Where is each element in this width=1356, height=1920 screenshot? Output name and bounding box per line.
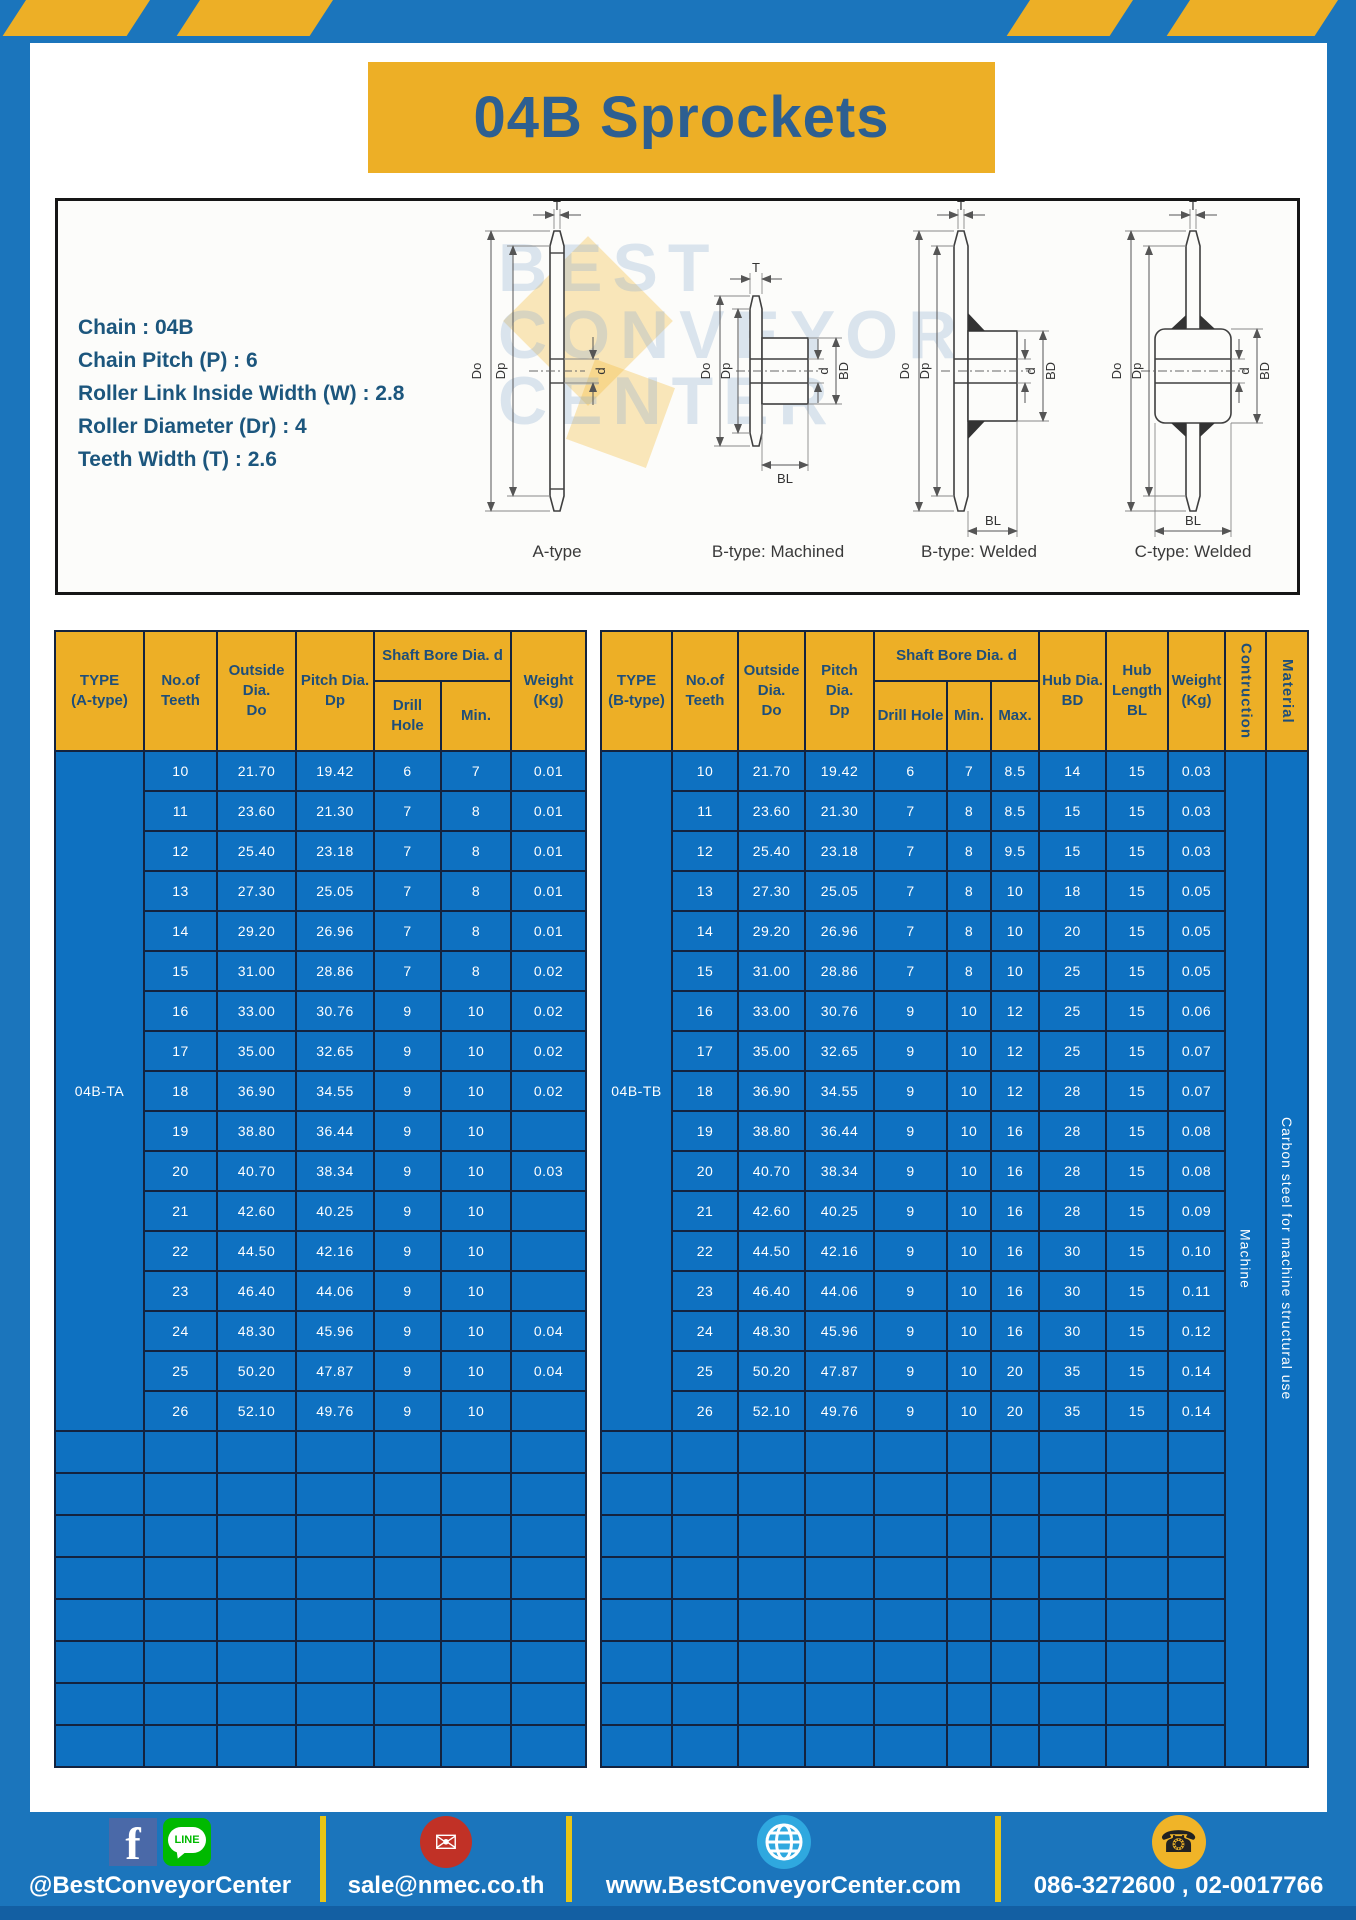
table-cell xyxy=(1106,1683,1168,1725)
table-cell: 33.00 xyxy=(738,991,805,1031)
table-cell: 10 xyxy=(947,1031,991,1071)
table-cell: 50.20 xyxy=(738,1351,805,1391)
table-cell: 9 xyxy=(874,1231,947,1271)
table-cell xyxy=(1039,1725,1106,1767)
table-cell: 20 xyxy=(672,1151,738,1191)
empty-row xyxy=(601,1641,1308,1683)
footer: f LINE @BestConveyorCenter ✉ sale@nmec.c… xyxy=(0,1812,1356,1906)
header-cell: Max. xyxy=(991,681,1039,751)
table-cell: 9 xyxy=(874,1111,947,1151)
svg-text:B-type: Welded: B-type: Welded xyxy=(921,542,1037,561)
table-cell: 15 xyxy=(1039,791,1106,831)
table-cell xyxy=(55,1725,144,1767)
table-cell: 35 xyxy=(1039,1391,1106,1431)
table-cell xyxy=(874,1725,947,1767)
table-cell xyxy=(947,1431,991,1473)
table-cell xyxy=(1106,1431,1168,1473)
table-row: 1633.0030.769101225150.06 xyxy=(601,991,1308,1031)
spec-drawing-panel: BEST CONVEYOR CENTER Chain : 04B Chain P… xyxy=(55,198,1300,595)
table-cell: 7 xyxy=(374,911,441,951)
table-cell: 0.01 xyxy=(511,751,586,791)
table-cell: 0.12 xyxy=(1168,1311,1225,1351)
table-cell: 50.20 xyxy=(217,1351,296,1391)
empty-row xyxy=(55,1641,586,1683)
table-cell xyxy=(805,1641,874,1683)
table-row: 1123.6021.30788.515150.03 xyxy=(601,791,1308,831)
table-cell: 28 xyxy=(1039,1111,1106,1151)
table-cell: 12 xyxy=(991,1071,1039,1111)
header-cell: Shaft Bore Dia. d xyxy=(874,631,1039,681)
table-cell xyxy=(511,1231,586,1271)
header-cell: Min. xyxy=(947,681,991,751)
table-cell: 8 xyxy=(947,871,991,911)
table-cell: 0.11 xyxy=(1168,1271,1225,1311)
table-cell: 10 xyxy=(947,1311,991,1351)
table-cell: 20 xyxy=(991,1391,1039,1431)
table-cell: 0.10 xyxy=(1168,1231,1225,1271)
footer-phone-section: ☎ 086-3272600 , 02-0017766 xyxy=(1001,1812,1356,1906)
table-cell xyxy=(441,1557,511,1599)
svg-text:BD: BD xyxy=(836,362,851,380)
table-cell xyxy=(511,1431,586,1473)
table-cell: 36.44 xyxy=(296,1111,374,1151)
table-cell xyxy=(1168,1515,1225,1557)
table-cell xyxy=(1106,1515,1168,1557)
table-cell xyxy=(296,1431,374,1473)
table-cell: 23.60 xyxy=(217,791,296,831)
table-row: 2142.6040.259101628150.09 xyxy=(601,1191,1308,1231)
table-cell: 25 xyxy=(1039,991,1106,1031)
table-cell: 42.16 xyxy=(805,1231,874,1271)
table-cell xyxy=(511,1391,586,1431)
phone-icon[interactable]: ☎ xyxy=(1152,1815,1206,1869)
table-cell: 0.01 xyxy=(511,831,586,871)
table-cell: 29.20 xyxy=(738,911,805,951)
table-cell: 49.76 xyxy=(805,1391,874,1431)
table-cell: 9 xyxy=(374,1231,441,1271)
table-cell: 23.18 xyxy=(805,831,874,871)
table-cell: 0.01 xyxy=(511,871,586,911)
table-cell: 10 xyxy=(441,1351,511,1391)
facebook-icon[interactable]: f xyxy=(109,1818,157,1866)
table-cell xyxy=(947,1599,991,1641)
header-cell: Outside Dia. Do xyxy=(217,631,296,751)
table-cell xyxy=(1039,1683,1106,1725)
table-cell: 0.07 xyxy=(1168,1031,1225,1071)
table-cell xyxy=(672,1473,738,1515)
table-cell: 15 xyxy=(1106,911,1168,951)
type-cell: 04B-TB xyxy=(601,751,672,1431)
table-cell: 10 xyxy=(991,951,1039,991)
table-cell xyxy=(511,1473,586,1515)
table-cell xyxy=(144,1557,217,1599)
table-cell xyxy=(601,1641,672,1683)
table-cell xyxy=(947,1683,991,1725)
table-cell: 47.87 xyxy=(805,1351,874,1391)
table-cell: 10 xyxy=(672,751,738,791)
table-cell: 27.30 xyxy=(738,871,805,911)
header-cell: Outside Dia. Do xyxy=(738,631,805,751)
table-cell: 0.04 xyxy=(511,1351,586,1391)
table-cell xyxy=(947,1641,991,1683)
table-cell xyxy=(511,1725,586,1767)
table-cell: 0.02 xyxy=(511,1071,586,1111)
table-cell: 10 xyxy=(947,1351,991,1391)
table-cell xyxy=(511,1641,586,1683)
table-cell: 42.16 xyxy=(296,1231,374,1271)
svg-text:C-type: Welded: C-type: Welded xyxy=(1135,542,1252,561)
table-cell: 25 xyxy=(144,1351,217,1391)
table-cell: 9 xyxy=(874,1031,947,1071)
table-cell: 12 xyxy=(991,991,1039,1031)
table-cell xyxy=(217,1515,296,1557)
table-cell: 15 xyxy=(1106,951,1168,991)
table-row: 1836.9034.559101228150.07 xyxy=(601,1071,1308,1111)
table-cell: 17 xyxy=(144,1031,217,1071)
table-row: 2244.5042.169101630150.10 xyxy=(601,1231,1308,1271)
table-cell: 16 xyxy=(991,1311,1039,1351)
table-row: 2550.2047.879102035150.14 xyxy=(601,1351,1308,1391)
watermark-shape xyxy=(566,359,675,468)
empty-row xyxy=(601,1557,1308,1599)
table-cell: 16 xyxy=(991,1271,1039,1311)
table-cell: 9 xyxy=(374,1271,441,1311)
table-cell: 30 xyxy=(1039,1311,1106,1351)
table-cell: 10 xyxy=(144,751,217,791)
table-cell: 21 xyxy=(144,1191,217,1231)
header-cell: Weight (Kg) xyxy=(1168,631,1225,751)
line-icon[interactable]: LINE xyxy=(163,1818,211,1866)
table-cell xyxy=(601,1557,672,1599)
table-cell: 33.00 xyxy=(217,991,296,1031)
table-cell: 10 xyxy=(441,1071,511,1111)
table-cell: 10 xyxy=(441,1031,511,1071)
table-cell: 0.07 xyxy=(1168,1071,1225,1111)
table-cell: 23 xyxy=(672,1271,738,1311)
website-url[interactable]: www.BestConveyorCenter.com xyxy=(606,1872,961,1900)
table-row: 2346.4044.069101630150.11 xyxy=(601,1271,1308,1311)
table-cell: 14 xyxy=(1039,751,1106,791)
table-cell: 32.65 xyxy=(805,1031,874,1071)
spec-line: Chain Pitch (P) : 6 xyxy=(78,344,404,377)
table-cell xyxy=(441,1431,511,1473)
table-cell xyxy=(738,1599,805,1641)
table-cell: 0.14 xyxy=(1168,1351,1225,1391)
table-cell: 9 xyxy=(874,1071,947,1111)
table-cell: 44.06 xyxy=(296,1271,374,1311)
table-cell: 8 xyxy=(441,791,511,831)
table-cell: 30 xyxy=(1039,1271,1106,1311)
table-cell: 7 xyxy=(874,791,947,831)
table-cell: 10 xyxy=(991,911,1039,951)
chain-specs: Chain : 04B Chain Pitch (P) : 6 Roller L… xyxy=(78,311,404,476)
empty-row xyxy=(55,1725,586,1767)
table-cell: 26.96 xyxy=(296,911,374,951)
table-cell: 7 xyxy=(374,871,441,911)
table-cell xyxy=(1106,1641,1168,1683)
svg-text:T: T xyxy=(957,201,965,213)
empty-row xyxy=(55,1557,586,1599)
phone-numbers[interactable]: 086-3272600 , 02-0017766 xyxy=(1034,1872,1324,1900)
table-cell xyxy=(511,1683,586,1725)
table-cell: 28.86 xyxy=(805,951,874,991)
table-row: 1225.4023.18789.515150.03 xyxy=(601,831,1308,871)
svg-text:Do: Do xyxy=(897,363,912,380)
header-cell: Weight (Kg) xyxy=(511,631,586,751)
table-cell: 19 xyxy=(672,1111,738,1151)
svg-text:d: d xyxy=(1237,367,1252,374)
table-cell xyxy=(805,1683,874,1725)
table-cell: 10 xyxy=(947,1151,991,1191)
table-cell: 15 xyxy=(1106,1351,1168,1391)
table-cell: 0.05 xyxy=(1168,871,1225,911)
table-cell: 8 xyxy=(441,871,511,911)
table-cell: 44.50 xyxy=(217,1231,296,1271)
table-cell: 21.30 xyxy=(805,791,874,831)
table-cell: 0.08 xyxy=(1168,1111,1225,1151)
table-cell xyxy=(144,1725,217,1767)
table-cell: 38.34 xyxy=(296,1151,374,1191)
empty-row xyxy=(55,1599,586,1641)
table-cell: 7 xyxy=(374,951,441,991)
table-cell: 0.01 xyxy=(511,791,586,831)
table-cell: 8.5 xyxy=(991,751,1039,791)
table-cell xyxy=(1168,1599,1225,1641)
social-handle[interactable]: @BestConveyorCenter xyxy=(29,1872,291,1900)
table-cell: 22 xyxy=(672,1231,738,1271)
table-cell: 44.50 xyxy=(738,1231,805,1271)
table-cell: 9 xyxy=(374,1391,441,1431)
table-cell: 25.05 xyxy=(296,871,374,911)
table-cell xyxy=(55,1473,144,1515)
table-cell: 0.02 xyxy=(511,951,586,991)
table-cell xyxy=(874,1515,947,1557)
table-cell: 38.80 xyxy=(738,1111,805,1151)
svg-text:Dp: Dp xyxy=(1129,363,1144,380)
svg-text:Dp: Dp xyxy=(493,363,508,380)
table-cell: 34.55 xyxy=(805,1071,874,1111)
table-cell xyxy=(296,1683,374,1725)
table-cell: 9.5 xyxy=(991,831,1039,871)
table-cell: 21.30 xyxy=(296,791,374,831)
table-cell: 49.76 xyxy=(296,1391,374,1431)
table-cell: 0.03 xyxy=(1168,751,1225,791)
table-cell: 7 xyxy=(874,951,947,991)
empty-row xyxy=(601,1515,1308,1557)
table-cell: 10 xyxy=(947,1111,991,1151)
table-cell: 21.70 xyxy=(738,751,805,791)
table-cell: 28.86 xyxy=(296,951,374,991)
table-cell: 15 xyxy=(1106,831,1168,871)
empty-row xyxy=(601,1599,1308,1641)
table-cell: 9 xyxy=(874,1191,947,1231)
table-cell xyxy=(601,1683,672,1725)
table-cell: 8 xyxy=(947,911,991,951)
table-cell xyxy=(217,1599,296,1641)
svg-text:d: d xyxy=(816,367,831,374)
table-cell: 38.80 xyxy=(217,1111,296,1151)
table-cell: 16 xyxy=(991,1151,1039,1191)
table-cell xyxy=(805,1599,874,1641)
svg-text:Do: Do xyxy=(698,363,713,380)
table-row: 1531.0028.86781025150.05 xyxy=(601,951,1308,991)
table-cell xyxy=(511,1557,586,1599)
table-cell xyxy=(296,1473,374,1515)
table-cell: 7 xyxy=(874,831,947,871)
header-cell: Drill Hole xyxy=(374,681,441,751)
table-cell xyxy=(511,1271,586,1311)
table-cell xyxy=(738,1641,805,1683)
table-cell: 7 xyxy=(874,911,947,951)
table-cell: 10 xyxy=(441,991,511,1031)
table-cell: 15 xyxy=(1106,1271,1168,1311)
table-cell xyxy=(738,1683,805,1725)
table-cell xyxy=(601,1725,672,1767)
header-cell: Pitch Dia. Dp xyxy=(296,631,374,751)
table-cell: 13 xyxy=(144,871,217,911)
table-cell: 8 xyxy=(441,951,511,991)
table-cell: 19.42 xyxy=(805,751,874,791)
table-cell: 14 xyxy=(672,911,738,951)
table-cell: 9 xyxy=(374,1191,441,1231)
table-cell: 0.03 xyxy=(1168,791,1225,831)
table-cell xyxy=(672,1683,738,1725)
table-cell: 10 xyxy=(441,1191,511,1231)
table-cell: 48.30 xyxy=(217,1311,296,1351)
table-cell xyxy=(874,1473,947,1515)
table-cell xyxy=(1106,1473,1168,1515)
table-04b-ta: TYPE (A-type)No.of TeethOutside Dia. DoP… xyxy=(54,630,587,1768)
email-address[interactable]: sale@nmec.co.th xyxy=(348,1872,545,1900)
table-cell xyxy=(441,1515,511,1557)
table-cell xyxy=(1168,1683,1225,1725)
table-cell xyxy=(144,1515,217,1557)
empty-row xyxy=(55,1683,586,1725)
table-cell xyxy=(738,1431,805,1473)
table-cell xyxy=(947,1473,991,1515)
table-cell xyxy=(296,1641,374,1683)
table-cell: 40.25 xyxy=(296,1191,374,1231)
table-cell xyxy=(511,1515,586,1557)
table-cell: 7 xyxy=(374,791,441,831)
table-cell: 0.03 xyxy=(1168,831,1225,871)
table-cell: 15 xyxy=(1106,871,1168,911)
figure-b-type-machined: T Do Dp d BD xyxy=(698,260,851,561)
table-cell xyxy=(55,1641,144,1683)
table-cell: 14 xyxy=(144,911,217,951)
table-cell xyxy=(738,1725,805,1767)
table-cell: 25 xyxy=(1039,951,1106,991)
footer-email-section: ✉ sale@nmec.co.th xyxy=(326,1812,566,1906)
table-cell: 31.00 xyxy=(738,951,805,991)
page-title-text: 04B Sprockets xyxy=(474,85,890,150)
table-cell xyxy=(441,1683,511,1725)
table-cell: 15 xyxy=(1106,791,1168,831)
table-cell xyxy=(991,1431,1039,1473)
table-cell xyxy=(991,1515,1039,1557)
table-cell: 0.02 xyxy=(511,991,586,1031)
svg-text:T: T xyxy=(752,260,760,275)
table-cell: 7 xyxy=(374,831,441,871)
table-cell: 46.40 xyxy=(217,1271,296,1311)
figure-a-type: T Do Dp d A-type xyxy=(469,201,608,561)
table-cell xyxy=(55,1683,144,1725)
table-cell: 15 xyxy=(672,951,738,991)
table-cell xyxy=(55,1599,144,1641)
table-cell: 0.06 xyxy=(1168,991,1225,1031)
table-cell xyxy=(672,1725,738,1767)
table-cell: 12 xyxy=(672,831,738,871)
table-row: 2040.7038.349101628150.08 xyxy=(601,1151,1308,1191)
table-cell xyxy=(55,1515,144,1557)
table-cell: 16 xyxy=(672,991,738,1031)
table-cell: 15 xyxy=(1039,831,1106,871)
table-cell: 11 xyxy=(672,791,738,831)
table-cell: 8 xyxy=(947,791,991,831)
table-cell xyxy=(874,1683,947,1725)
header-cell: Pitch Dia. Dp xyxy=(805,631,874,751)
table-cell xyxy=(672,1557,738,1599)
table-04b-tb: TYPE (B-type)No.of TeethOutside Dia. DoP… xyxy=(600,630,1309,1768)
table-cell xyxy=(738,1473,805,1515)
table-cell: Machine xyxy=(1225,751,1266,1767)
table-cell: 31.00 xyxy=(217,951,296,991)
svg-text:Dp: Dp xyxy=(917,363,932,380)
table-cell xyxy=(991,1599,1039,1641)
table-cell: 9 xyxy=(874,1351,947,1391)
table-cell: 9 xyxy=(874,991,947,1031)
table-cell xyxy=(947,1515,991,1557)
table-cell: 40.70 xyxy=(217,1151,296,1191)
table-cell: 7 xyxy=(947,751,991,791)
table-cell xyxy=(511,1111,586,1151)
empty-row xyxy=(55,1515,586,1557)
figure-c-type-welded: T Do Dp d BD xyxy=(1109,201,1272,561)
table-cell: 23 xyxy=(144,1271,217,1311)
table-cell: 19.42 xyxy=(296,751,374,791)
empty-row xyxy=(601,1473,1308,1515)
table-cell: 42.60 xyxy=(738,1191,805,1231)
footer-social-section: f LINE @BestConveyorCenter xyxy=(0,1812,320,1906)
table-cell xyxy=(55,1431,144,1473)
spec-line: Roller Diameter (Dr) : 4 xyxy=(78,410,404,443)
table-cell xyxy=(601,1515,672,1557)
svg-text:Do: Do xyxy=(1109,363,1124,380)
table-cell xyxy=(738,1557,805,1599)
table-row: 04B-TB1021.7019.42678.514150.03MachineCa… xyxy=(601,751,1308,791)
table-cell xyxy=(991,1641,1039,1683)
table-cell: 7 xyxy=(874,871,947,911)
table-cell: 0.04 xyxy=(511,1311,586,1351)
table-cell: 15 xyxy=(1106,1391,1168,1431)
empty-row xyxy=(601,1431,1308,1473)
table-cell xyxy=(217,1557,296,1599)
email-icon[interactable]: ✉ xyxy=(420,1816,472,1868)
table-cell: 36.90 xyxy=(217,1071,296,1111)
table-cell xyxy=(374,1725,441,1767)
table-cell: 0.14 xyxy=(1168,1391,1225,1431)
table-cell: 25.05 xyxy=(805,871,874,911)
spec-line: Teeth Width (T) : 2.6 xyxy=(78,443,404,476)
table-cell: 8 xyxy=(441,911,511,951)
globe-icon[interactable] xyxy=(756,1814,812,1870)
header-cell: Hub Length BL xyxy=(1106,631,1168,751)
table-cell xyxy=(991,1683,1039,1725)
table-cell xyxy=(1168,1473,1225,1515)
table-cell: 10 xyxy=(441,1111,511,1151)
table-cell: 21 xyxy=(672,1191,738,1231)
header-cell: TYPE (B-type) xyxy=(601,631,672,751)
